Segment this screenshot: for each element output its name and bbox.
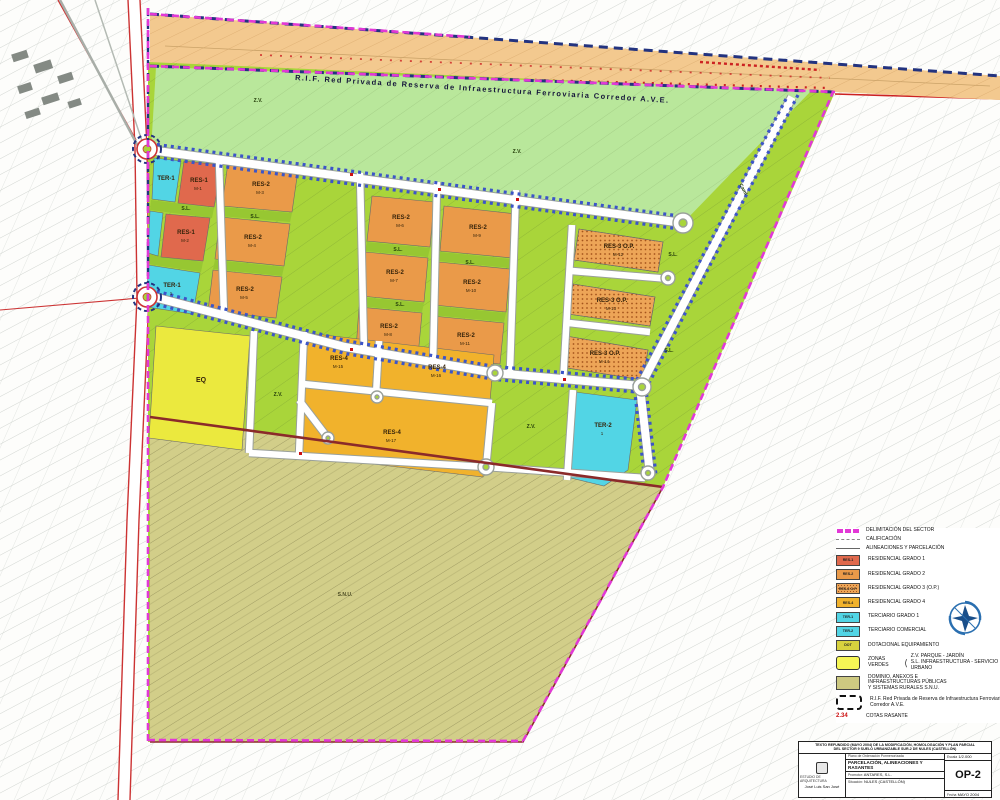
- project-title: TEXTO REFUNDIDO (MAYO 2004) DE LA MODIFI…: [799, 742, 991, 754]
- legend-item-snu: DOMINIO, ANEXOS E INFRAESTRUCTURAS PÚBLI…: [836, 675, 1000, 692]
- svg-text:M-4: M-4: [248, 243, 256, 248]
- zone-label-sl: S.L.: [664, 348, 674, 354]
- location-row: Situación: NULES (CASTELLÓN): [846, 779, 944, 785]
- svg-text:RES-2: RES-2: [236, 287, 254, 293]
- zone-label-sl: S.L.: [181, 206, 191, 212]
- legend-item-rif: R.I.F. Red Privada de Reserva de Infraes…: [836, 695, 1000, 710]
- svg-text:M-6: M-6: [396, 223, 404, 228]
- legend-item-cota: 2.34 COTAS RASANTE: [836, 713, 1000, 720]
- res3-swatch: RES-3 O.P.: [836, 583, 860, 594]
- title-block: TEXTO REFUNDIDO (MAYO 2004) DE LA MODIFI…: [798, 741, 992, 798]
- svg-text:RES-2: RES-2: [386, 270, 404, 276]
- zone-label-zv: Z.V.: [274, 392, 283, 398]
- svg-text:RES-3 O.P.: RES-3 O.P.: [590, 351, 621, 357]
- svg-text:RES-2: RES-2: [252, 182, 270, 188]
- svg-text:M-14: M-14: [599, 359, 610, 364]
- res1-swatch: RES-1: [836, 555, 860, 566]
- zone-label-zv: Z.V.: [527, 424, 536, 430]
- res4-swatch: RES-4: [836, 597, 860, 608]
- plan-sheet: { "band": { "rif_label": "R.I.F. Red Pri…: [0, 0, 1000, 800]
- legend-item-alineaciones: ALINEACIONES Y PARCELACIÓN: [836, 546, 1000, 552]
- svg-text:RES-2: RES-2: [244, 235, 262, 241]
- compass-logo-icon: [945, 598, 985, 638]
- svg-text:M-11: M-11: [460, 341, 470, 346]
- svg-text:RES-2: RES-2: [392, 215, 410, 221]
- svg-text:M-10: M-10: [466, 288, 477, 293]
- sheet-info-cell: Plano de Ordenación Pormenorizada PARCEL…: [846, 754, 944, 797]
- architect-name: José Luis San José: [805, 784, 840, 789]
- zone-label-sl: S.L.: [395, 302, 405, 308]
- svg-text:M-8: M-8: [384, 332, 392, 337]
- legend-item-res3: RES-3 O.P. RESIDENCIAL GRADO 3 (O.P.): [836, 583, 1000, 594]
- zone-label-zv: Z.V.: [254, 98, 263, 104]
- solid-line-swatch: [836, 548, 860, 549]
- magenta-dash-swatch: [836, 529, 860, 533]
- scale-row: Escala 1/2.000: [945, 754, 991, 761]
- svg-text:RES-2: RES-2: [380, 324, 398, 330]
- dot-swatch: DOT: [836, 640, 860, 651]
- ter1-swatch: TER-1: [836, 612, 860, 623]
- zone-label-snu: S.N.U.: [338, 592, 353, 598]
- svg-text:RES-3 O.P.: RES-3 O.P.: [597, 298, 628, 304]
- svg-text:RES-4: RES-4: [428, 365, 446, 371]
- zone-label-zv: Z.V.: [513, 149, 522, 155]
- svg-text:M-12: M-12: [613, 252, 624, 257]
- svg-text:RES-4: RES-4: [383, 430, 401, 436]
- svg-text:TER-2: TER-2: [594, 423, 612, 429]
- svg-text:M-17: M-17: [386, 438, 397, 443]
- dashed-line-swatch: [836, 539, 860, 540]
- svg-text:M-5: M-5: [240, 295, 248, 300]
- cota-sample: 2.34: [836, 713, 860, 720]
- svg-text:RES-2: RES-2: [469, 225, 487, 231]
- res2-swatch: RES-2: [836, 569, 860, 580]
- svg-text:M-1: M-1: [194, 186, 202, 191]
- svg-text:M-16: M-16: [431, 373, 442, 378]
- svg-text:M-3: M-3: [256, 190, 264, 195]
- rif-dashed-swatch: [836, 695, 862, 710]
- zone-label-sl: S.L.: [393, 247, 403, 253]
- zone-label-sl: S.L.: [465, 260, 475, 266]
- architect-cell: ESTUDIO DE ARQUITECTURA José Luis San Jo…: [799, 754, 846, 797]
- svg-text:RES-2: RES-2: [463, 280, 481, 286]
- legend-item-res1: RES-1 RESIDENCIAL GRADO 1: [836, 555, 1000, 566]
- svg-text:RES-4: RES-4: [330, 356, 348, 362]
- sheet-number: OP-2: [945, 761, 991, 791]
- legend-item-dot: DOT DOTACIONAL EQUIPAMIENTO: [836, 640, 1000, 651]
- svg-text:RES-1: RES-1: [177, 230, 195, 236]
- firm-logo: [816, 762, 828, 774]
- svg-text:EQ: EQ: [196, 377, 207, 384]
- svg-text:RES-1: RES-1: [190, 178, 208, 184]
- zone-label-sl: S.L.: [668, 252, 678, 258]
- zone-label-sl: S.L.: [250, 214, 260, 220]
- sheet-title: PARCELACIÓN, ALINEACIONES Y RASANTES: [846, 760, 944, 772]
- svg-text:TER-1: TER-1: [157, 176, 175, 182]
- scale-sheet-cell: Escala 1/2.000 OP-2 Fecha MAYO 2004: [944, 754, 991, 797]
- ter2-swatch: TER-2: [836, 626, 860, 637]
- date-row: Fecha MAYO 2004: [945, 791, 991, 797]
- legend-item-calificacion: CALIFICACIÓN: [836, 537, 1000, 543]
- legend-item-delimitation: DELIMITACIÓN DEL SECTOR: [836, 528, 1000, 534]
- svg-text:M-9: M-9: [473, 233, 481, 238]
- legend-item-zonas-verdes: ZONAS VERDES ⟨ Z.V. PARQUE - JARDÍN S.L.…: [836, 654, 1000, 671]
- promoter-row: Promotor: ANTARES, S.L.: [846, 772, 944, 779]
- zv-swatch: [836, 656, 860, 670]
- olive-swatch: [836, 676, 860, 690]
- legend-item-res2: RES-2 RESIDENCIAL GRADO 2: [836, 569, 1000, 580]
- svg-text:RES-2: RES-2: [457, 333, 475, 339]
- svg-text:M-2: M-2: [181, 238, 189, 243]
- svg-text:M-15: M-15: [333, 364, 344, 369]
- svg-text:M-13: M-13: [606, 306, 617, 311]
- svg-text:RES-3 O.P.: RES-3 O.P.: [604, 244, 635, 250]
- svg-text:TER-1: TER-1: [163, 283, 181, 289]
- bracket-glyph: ⟨: [904, 658, 908, 668]
- svg-text:M-7: M-7: [390, 278, 398, 283]
